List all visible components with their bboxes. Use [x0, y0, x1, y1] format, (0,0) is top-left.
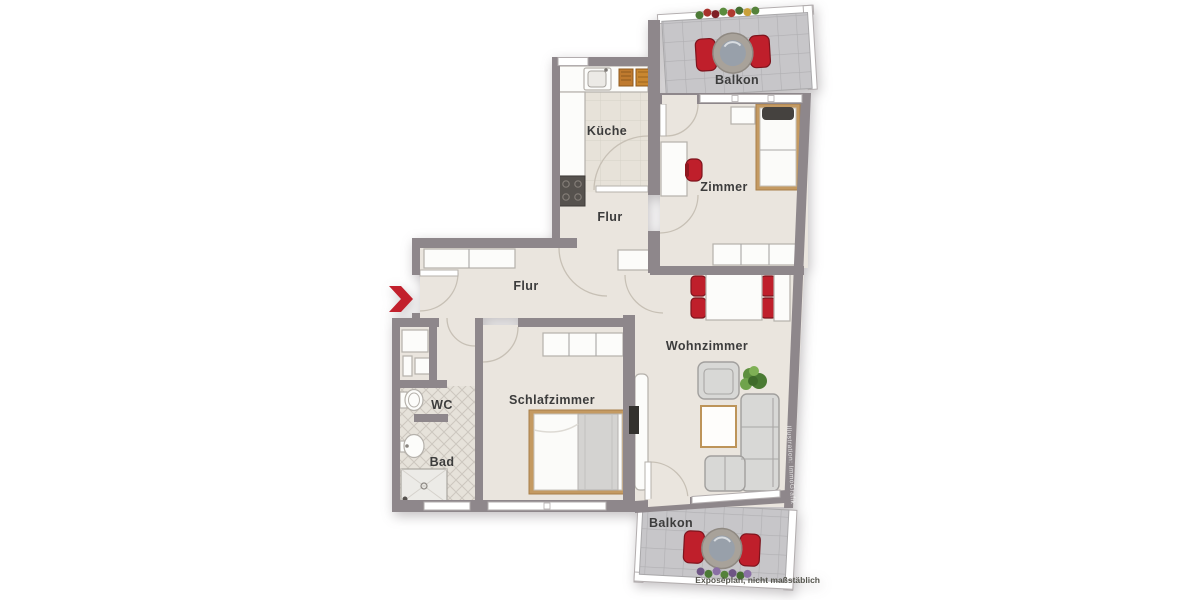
entry-door-leaf	[420, 270, 458, 276]
double-bed-icon	[529, 410, 627, 494]
balcony-door-leaf-zimmer	[660, 104, 666, 136]
room-label-schlafzimmer: Schlafzimmer	[509, 393, 595, 407]
sideboard	[774, 271, 790, 321]
tv-icon	[629, 406, 639, 434]
room-label-balkon-oben: Balkon	[715, 73, 759, 87]
kitchen-counter-left	[558, 92, 585, 176]
schlafzimmer-wardrobe	[543, 333, 623, 356]
shower-icon	[401, 469, 447, 503]
flur-cabinet	[618, 250, 653, 270]
plan-caption: Exposéplan, nicht maßstäblich	[695, 575, 820, 585]
armchair-icon	[698, 362, 739, 399]
apartment-floorplan: Balkon Balkon	[0, 0, 1200, 600]
desk	[661, 142, 687, 196]
bad-window	[424, 502, 470, 510]
desk-chair-icon	[685, 159, 702, 181]
room-label-bad: Bad	[430, 455, 455, 469]
room-label-kueche: Küche	[587, 124, 627, 138]
flur-wardrobe	[424, 249, 515, 268]
kitchen-door-leaf	[596, 186, 648, 192]
room-label-wohnzimmer: Wohnzimmer	[666, 339, 748, 353]
floorplan-page: Balkon Balkon	[0, 0, 1200, 600]
room-label-flur-oben: Flur	[597, 210, 622, 224]
zimmer-wardrobe	[713, 244, 797, 265]
kitchen-stove-icon	[558, 176, 585, 206]
zimmer-window	[700, 95, 802, 103]
dining-table-icon	[691, 272, 776, 320]
kitchen-window	[558, 58, 588, 66]
room-label-wc: WC	[431, 398, 453, 412]
single-bed-icon	[756, 104, 800, 190]
room-label-zimmer: Zimmer	[700, 180, 748, 194]
nightstand	[731, 107, 755, 124]
room-label-balkon-unten: Balkon	[649, 516, 693, 530]
coffee-table-icon	[701, 406, 736, 447]
balcony-door-leaf-wohnzimmer	[645, 462, 651, 500]
room-label-flur-unten: Flur	[513, 279, 538, 293]
wc-toilet-icon	[400, 390, 423, 411]
kitchen-sink-icon	[584, 68, 611, 90]
entrance-arrow-icon	[389, 286, 413, 312]
